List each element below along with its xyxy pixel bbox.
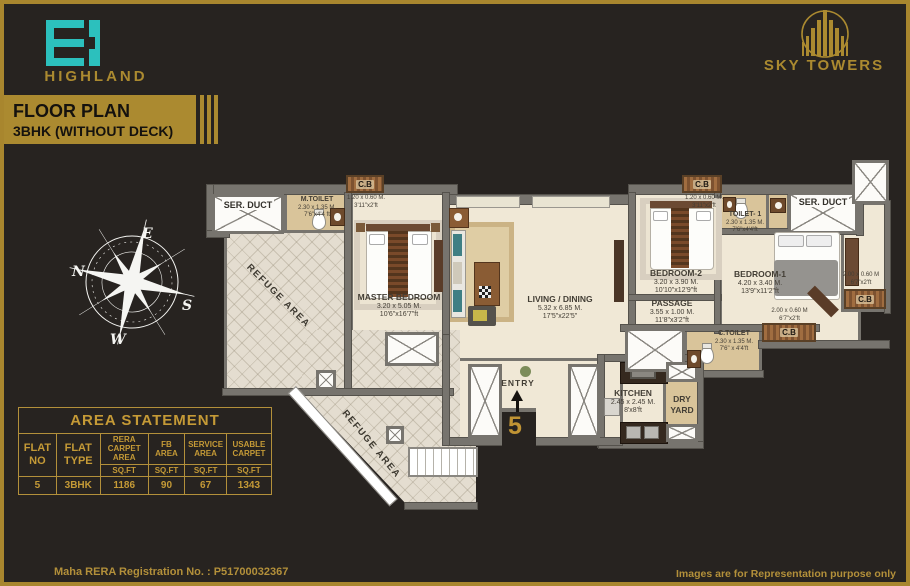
brand-name: HIGHLAND [26,68,166,85]
rera-carpet-value: 1186 [100,476,148,494]
sofa-cushion [453,262,462,284]
service-area-value: 67 [185,476,227,494]
cb-bedroom2-dims: 1.20 x 0.60 M. 3'11"x2'ft [678,195,730,210]
small-duct [386,426,404,444]
compass-south: S [182,298,192,314]
banner-stripe [207,95,211,144]
area-statement-table: AREA STATEMENT FLAT NO FLAT TYPE RERA CA… [18,407,272,495]
unit-sqft: SQ.FT [226,464,271,476]
compass-east: E [141,226,153,242]
cb-master-box: C.B [346,175,384,193]
room-label-toilet-1: TOILET- 1 2.30 x 1.35 M. 7'6"x4'4'ft [720,211,770,235]
master-dresser [434,240,443,292]
table-row: 5 3BHK 1186 90 67 1343 [19,476,272,494]
cb-bottom-dims: 2.00 x 0.60 M 6'7"x2'ft [762,308,817,323]
disclaimer-text: Images are for Representation purpose on… [676,568,896,580]
pillow [369,234,385,245]
basin [770,198,786,213]
nightstand [356,223,365,232]
window [456,196,520,208]
compass-west: W [110,332,127,348]
master-bed-headboard [366,224,430,231]
service-duct-left-label: SER. DUCT [218,200,278,210]
floor-plan-poster: HIGHLAND FLOOR PLAN 3BHK (WITHOUT DECK) … [0,0,910,586]
unit-sqft: SQ.FT [100,464,148,476]
nightstand [431,223,440,232]
room-label-bedroom-2: BEDROOM-2 3.20 x 3.90 M. 10'10"x12'9"ft [630,268,722,296]
cb-bottom-box: C.B [762,323,816,342]
col-flat-no: FLAT NO [19,434,57,477]
banner-stripe [214,95,218,144]
compass-north: N [71,264,86,280]
col-rera-carpet: RERA CARPET AREA [100,434,148,465]
wall [344,192,352,394]
dry-yard-duct-bottom [666,424,698,442]
tv-unit [614,240,624,302]
room-label-m-toilet: M.TOILET 2.30 x 1.35 M. 7'6"x4'4 ft [288,196,346,220]
lift-shaft-a [468,364,502,438]
pillow [696,211,711,221]
room-label-bedroom-1: BEDROOM-1 4.20 x 3.40 M. 13'9"x11'2"ft [714,269,806,297]
sky-towers-logo-icon [782,8,868,58]
room-label-kitchen: KITCHEN 2.45 x 2.45 M. 8'x8'ft [596,388,670,416]
fb-area-value: 90 [148,476,185,494]
usable-carpet-value: 1343 [226,476,271,494]
cb-bedroom2-box: C.B [682,175,722,193]
area-statement-title: AREA STATEMENT [19,408,272,434]
flat-type-value: 3BHK [56,476,100,494]
room-label-master-bedroom: MASTER BEDROOM 3.20 x 5.05 M. 10'6"x16'7… [353,292,445,320]
rera-registration-text: Maha RERA Registration No. : P5170003236… [54,566,288,578]
room-label-dry-yard: DRY YARD [663,394,701,415]
annex-window-box [852,160,889,204]
room-label-living-dining: LIVING / DINING 5.32 x 6.85 M. 17'5"x22'… [505,294,615,322]
pillow [806,235,832,247]
window [532,196,610,208]
pillow [653,211,668,221]
coffee-table [474,262,500,306]
sky-towers-name: SKY TOWERS [740,57,908,74]
room-label-c-toilet: C.TOILET 2.30 x 1.35 M. 7'6" x 4'4'ft [706,330,762,354]
entry-arrow-stem [516,399,519,412]
cb-right-box: C.B [844,289,886,309]
sofa-cushion [453,234,462,256]
service-duct-right-label: SER. DUCT [792,197,854,207]
col-usable-carpet: USABLE CARPET [226,434,271,465]
entry-label: ENTRY [492,378,544,389]
kitchen-sink [626,426,641,439]
banner-subtitle: 3BHK (WITHOUT DECK) [13,123,196,140]
lamp [454,213,462,221]
col-fb-area: FB AREA [148,434,185,465]
banner-stripe [200,95,204,144]
wall [222,388,454,396]
plant [520,366,531,377]
small-duct [316,370,336,390]
flat-number: 5 [508,412,522,441]
pillow [778,235,804,247]
banner-title: FLOOR PLAN [13,101,196,123]
lift-shaft-c [385,332,439,366]
room-label-passage: PASSAGE 3.55 x 1.00 M. 11'8"x3'2"ft [626,298,718,326]
unit-sqft: SQ.FT [148,464,185,476]
chess-board [479,286,491,298]
sofa-cushion [453,290,462,312]
master-bed-runner [388,231,408,297]
c-toilet-vanity [687,350,701,368]
col-flat-type: FLAT TYPE [56,434,100,477]
floor-plan-banner: FLOOR PLAN 3BHK (WITHOUT DECK) [4,95,196,144]
pillow [412,234,428,245]
armchair-seat [473,310,487,321]
highland-logo-icon [46,20,100,66]
wall [442,334,450,446]
wall [404,502,478,510]
cb-master-dims: 1.20 x 0.60 M. 3'11"x2'ft [340,195,392,210]
flat-no-value: 5 [19,476,57,494]
kitchen-sink [644,426,659,439]
cb-right-dims: 2.00 x 0.60 M 6'7"x2'ft [835,272,887,287]
bedroom2-bed-runner [671,208,689,268]
col-service-area: SERVICE AREA [185,434,227,465]
compass-rose-icon: E N S W [66,216,198,353]
unit-sqft: SQ.FT [185,464,227,476]
staircase [408,447,478,477]
